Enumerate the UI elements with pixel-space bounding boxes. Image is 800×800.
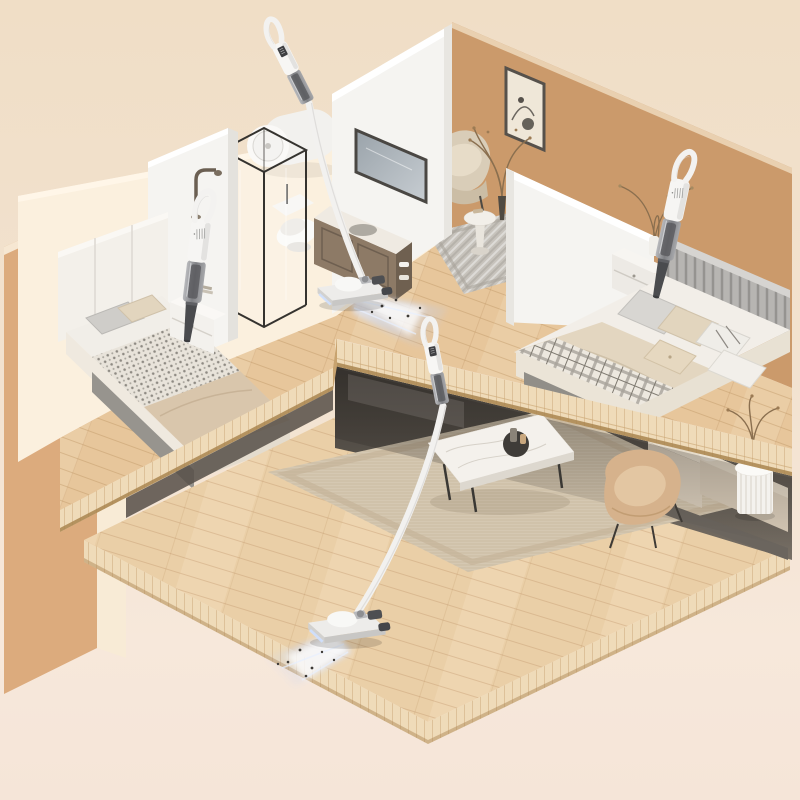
framed-abstract-art <box>506 68 544 150</box>
scene-stage <box>0 0 800 800</box>
isometric-home-cutaway <box>0 0 800 800</box>
